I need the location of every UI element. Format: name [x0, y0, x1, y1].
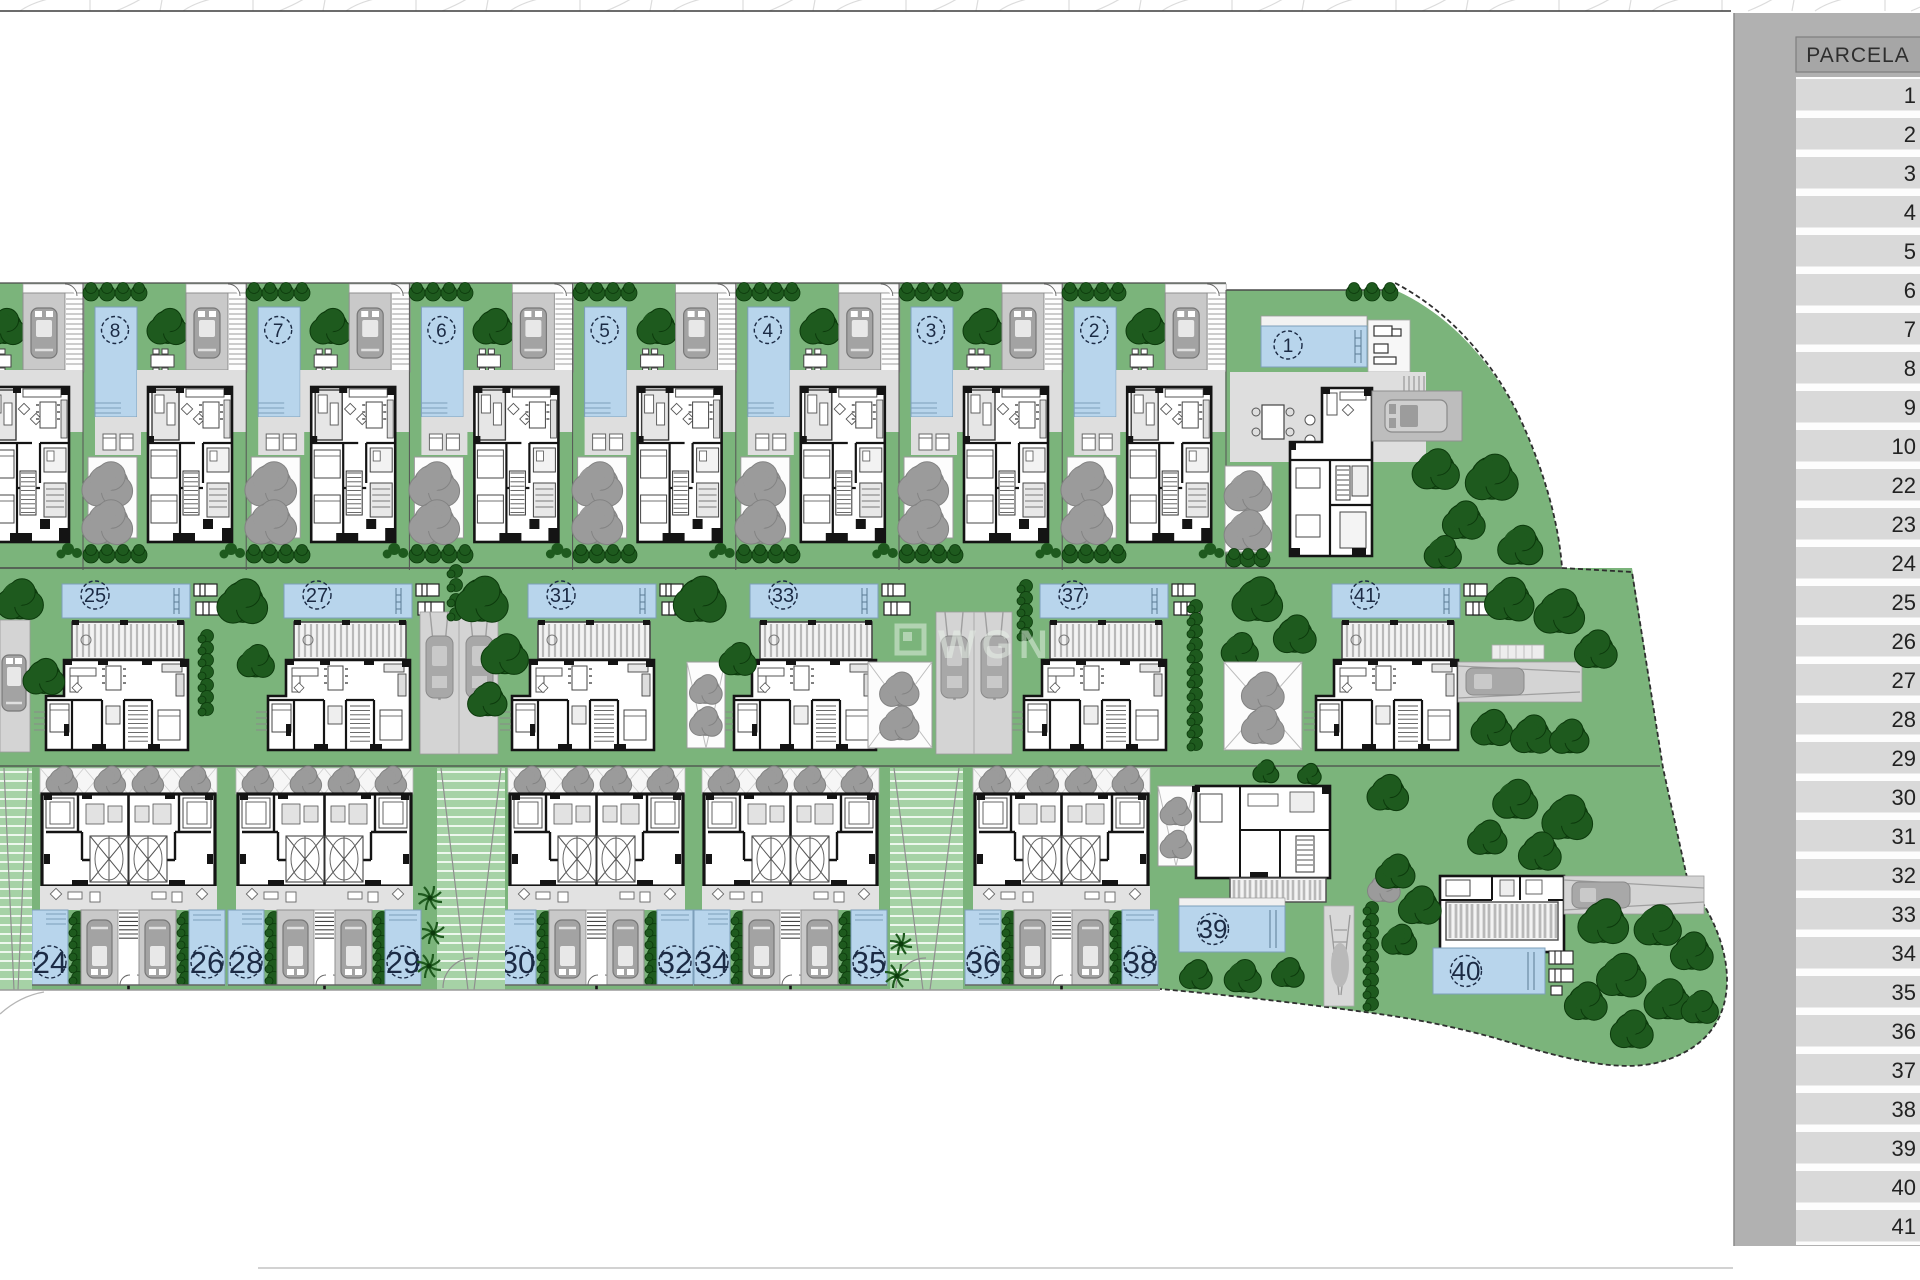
svg-text:26: 26 [1892, 629, 1916, 654]
svg-text:35: 35 [1892, 980, 1916, 1005]
svg-text:38: 38 [1892, 1097, 1916, 1122]
svg-text:2: 2 [1089, 321, 1100, 342]
svg-text:WGN: WGN [938, 623, 1054, 667]
svg-text:27: 27 [1892, 668, 1916, 693]
svg-text:3: 3 [1904, 161, 1916, 186]
svg-text:28: 28 [229, 945, 263, 980]
svg-text:6: 6 [436, 321, 447, 342]
svg-text:6: 6 [1904, 278, 1916, 303]
svg-text:25: 25 [1892, 590, 1916, 615]
svg-text:34: 34 [1892, 941, 1916, 966]
svg-text:PARCELA: PARCELA [1806, 44, 1909, 67]
svg-text:5: 5 [599, 321, 610, 342]
svg-text:31: 31 [550, 585, 572, 607]
svg-text:28: 28 [1892, 707, 1916, 732]
svg-text:8: 8 [1904, 356, 1916, 381]
svg-text:4: 4 [763, 321, 774, 342]
svg-text:38: 38 [1123, 945, 1157, 980]
svg-text:39: 39 [1199, 914, 1228, 944]
svg-text:40: 40 [1452, 956, 1481, 986]
svg-text:40: 40 [1892, 1175, 1916, 1200]
svg-text:25: 25 [84, 585, 106, 607]
svg-text:32: 32 [658, 945, 692, 980]
svg-text:33: 33 [772, 585, 794, 607]
svg-text:5: 5 [1904, 239, 1916, 264]
svg-text:27: 27 [306, 585, 328, 607]
svg-text:1: 1 [1904, 83, 1916, 108]
svg-text:36: 36 [1892, 1019, 1916, 1044]
svg-text:32: 32 [1892, 863, 1916, 888]
svg-text:24: 24 [33, 945, 67, 980]
svg-text:10: 10 [1892, 434, 1916, 459]
svg-text:1: 1 [1283, 336, 1294, 357]
svg-text:34: 34 [695, 945, 729, 980]
svg-text:29: 29 [1892, 746, 1916, 771]
svg-text:23: 23 [1892, 512, 1916, 537]
svg-text:22: 22 [1892, 473, 1916, 498]
svg-text:37: 37 [1062, 585, 1084, 607]
svg-text:7: 7 [1904, 317, 1916, 342]
svg-text:41: 41 [1354, 585, 1376, 607]
svg-text:3: 3 [926, 321, 937, 342]
svg-text:31: 31 [1892, 824, 1916, 849]
svg-text:37: 37 [1892, 1058, 1916, 1083]
svg-text:2: 2 [1904, 122, 1916, 147]
svg-text:33: 33 [1892, 902, 1916, 927]
svg-text:30: 30 [501, 945, 535, 980]
svg-text:36: 36 [966, 945, 1000, 980]
svg-text:24: 24 [1892, 551, 1916, 576]
svg-text:9: 9 [1904, 395, 1916, 420]
svg-text:41: 41 [1892, 1214, 1916, 1239]
svg-text:39: 39 [1892, 1136, 1916, 1161]
svg-text:7: 7 [273, 321, 284, 342]
svg-text:30: 30 [1892, 785, 1916, 810]
svg-text:26: 26 [190, 945, 224, 980]
svg-text:35: 35 [852, 945, 886, 980]
svg-text:8: 8 [110, 321, 121, 342]
svg-text:29: 29 [386, 945, 420, 980]
svg-text:4: 4 [1904, 200, 1916, 225]
